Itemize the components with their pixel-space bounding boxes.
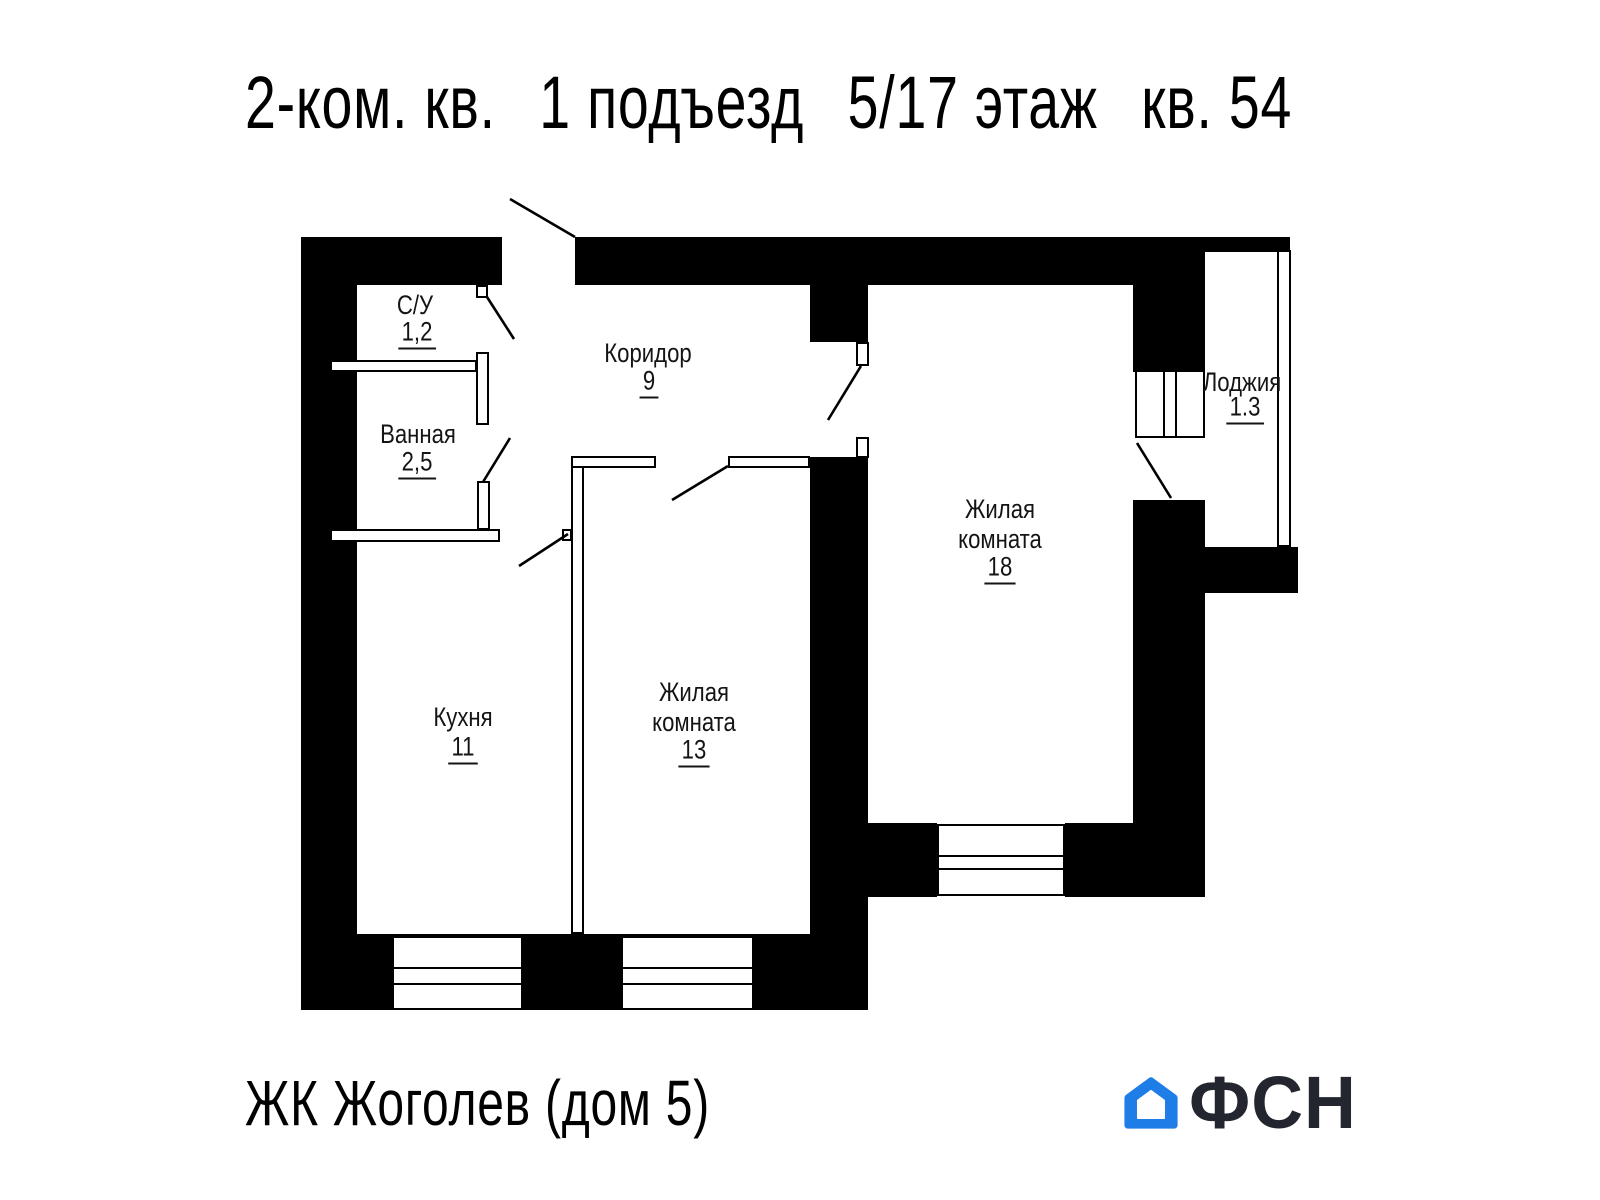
room-label-kitchen: Кухня bbox=[433, 702, 492, 732]
kitchen-door-swing bbox=[519, 534, 568, 566]
room-area-corridor: 9 bbox=[640, 366, 659, 399]
project-name: ЖК Жоголев (дом 5) bbox=[245, 1068, 710, 1138]
logo-text: ФСН bbox=[1189, 1066, 1357, 1140]
developer-logo: ФСН bbox=[1122, 1066, 1362, 1140]
room-area-room18: 18 bbox=[984, 552, 1015, 585]
floor-plan: С/У 1,2 Ванная 2,5 Коридор 9 Кухня 11 Жи… bbox=[0, 0, 1600, 1200]
room-area-room13: 13 bbox=[678, 735, 709, 768]
room-area-loggia: 1.3 bbox=[1226, 392, 1263, 425]
room-label-corridor: Коридор bbox=[604, 338, 691, 368]
room-label-bath: Ванная bbox=[380, 419, 456, 449]
entrance-door-swing bbox=[510, 199, 575, 237]
room-area-bath: 2,5 bbox=[398, 447, 435, 480]
su-door-swing bbox=[487, 297, 514, 339]
room-label-room13: Жилая комната bbox=[652, 677, 736, 737]
door-swing-lines bbox=[0, 0, 1600, 1200]
room-area-kitchen: 11 bbox=[448, 732, 478, 765]
room13-door-swing bbox=[672, 466, 728, 500]
room-area-su: 1,2 bbox=[398, 317, 435, 350]
room-label-su: С/У bbox=[397, 290, 433, 320]
loggia-door-swing bbox=[1137, 443, 1171, 498]
room18-door-swing bbox=[828, 366, 861, 420]
bath-door-swing bbox=[483, 438, 510, 482]
house-icon bbox=[1122, 1074, 1180, 1132]
room-label-room18: Жилая комната bbox=[958, 494, 1042, 554]
